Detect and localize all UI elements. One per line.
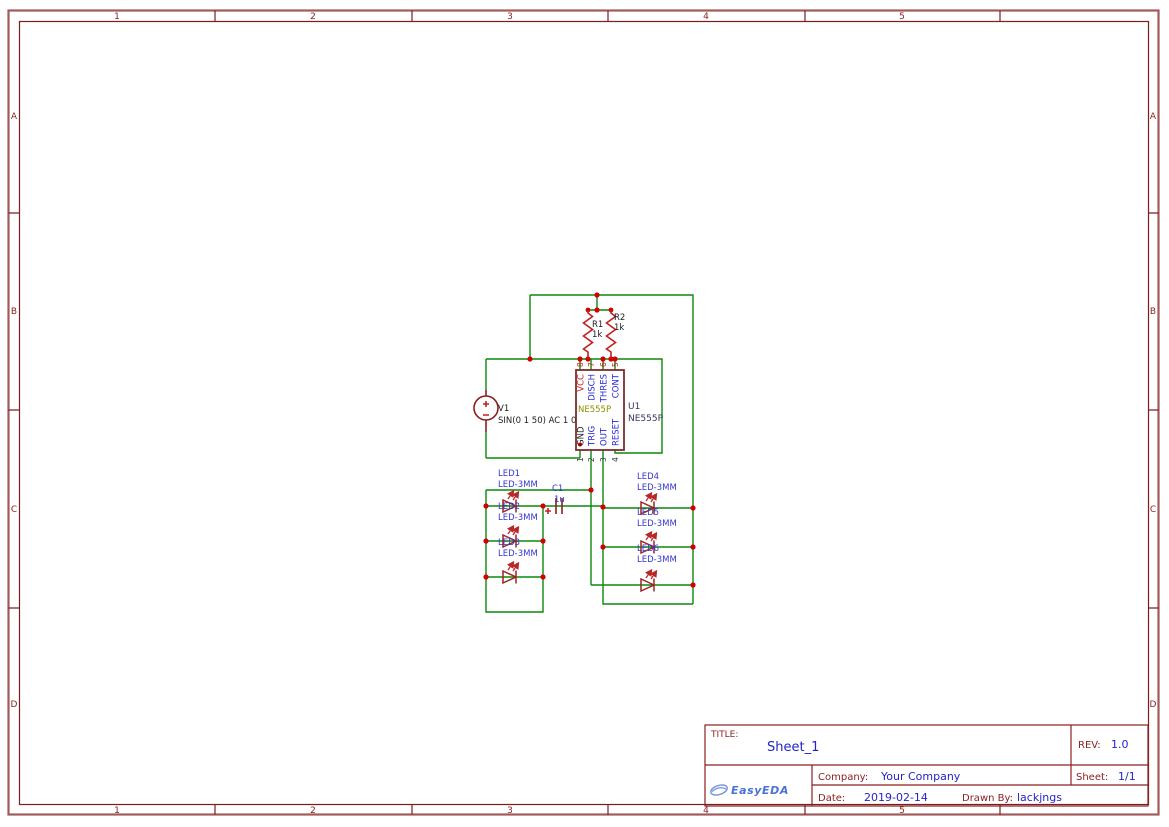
col-label: 1 <box>114 806 120 816</box>
date-label: Date: <box>818 793 845 804</box>
svg-text:OUT: OUT <box>600 427 610 446</box>
c1-ref: C1 <box>552 484 563 494</box>
row-label: A <box>1150 112 1157 122</box>
u1-top-pin-numbers: 8 7 6 5 <box>576 362 620 367</box>
svg-text:RESET: RESET <box>612 418 622 446</box>
svg-text:DISCH: DISCH <box>588 374 598 401</box>
component-v1-source[interactable]: V1 SIN(0 1 50) AC 1 0 <box>474 390 576 432</box>
svg-text:GND: GND <box>577 426 587 446</box>
title-label: TITLE: <box>710 730 738 740</box>
c1-value: 1u <box>554 495 565 505</box>
row-label: C <box>1150 505 1156 515</box>
svg-text:6: 6 <box>599 362 608 367</box>
rev-label: REV: <box>1078 740 1101 751</box>
row-label: B <box>1150 307 1156 317</box>
row-label: A <box>11 112 18 122</box>
easyeda-logo-text: EasyEDA <box>731 784 789 797</box>
company-label: Company: <box>818 772 868 783</box>
component-u1-ne555[interactable]: 8 7 6 5 1 2 3 4 VCC DISCH THRES CONT GND <box>576 362 664 462</box>
svg-text:5: 5 <box>611 362 620 367</box>
company-value[interactable]: Your Company <box>880 770 961 783</box>
led3-symbol[interactable] <box>503 562 519 584</box>
row-label: D <box>1150 700 1157 710</box>
date-value[interactable]: 2019-02-14 <box>864 791 928 804</box>
led6-symbol[interactable] <box>641 570 657 592</box>
led2-value: LED-3MM <box>498 513 538 523</box>
col-label: 5 <box>899 806 905 816</box>
row-label: B <box>11 307 17 317</box>
row-label: D <box>11 700 18 710</box>
col-label: 4 <box>703 12 709 22</box>
svg-text:3: 3 <box>599 457 608 462</box>
wire <box>486 450 580 458</box>
led1-ref: LED1 <box>498 469 520 479</box>
svg-text:4: 4 <box>611 457 620 462</box>
led3-value: LED-3MM <box>498 549 538 559</box>
rev-value[interactable]: 1.0 <box>1111 738 1129 751</box>
col-label: 4 <box>703 806 709 816</box>
circuit: V1 SIN(0 1 50) AC 1 0 R1 1k R2 1k 8 7 6 … <box>474 292 696 612</box>
row-label: C <box>11 505 17 515</box>
easyeda-logo-icon <box>710 783 729 797</box>
led4-ref: LED4 <box>637 472 659 482</box>
col-label: 3 <box>507 12 513 22</box>
drawn-by-label: Drawn By: <box>962 793 1013 804</box>
frame-row-labels-left: A B C D <box>11 112 18 710</box>
frame-column-labels-top: 1 2 3 4 5 <box>114 12 905 22</box>
schematic-sheet: 1 2 3 4 5 1 2 3 4 5 A B C D A B C D <box>0 0 1169 827</box>
polarity-plus <box>545 508 551 514</box>
led5-ref: LED5 <box>637 508 659 518</box>
component-c1-capacitor[interactable]: C1 1u <box>545 484 565 514</box>
component-r1-resistor[interactable]: R1 1k <box>584 310 604 359</box>
svg-text:7: 7 <box>587 362 596 367</box>
u1-value: NE555P <box>628 414 664 424</box>
svg-text:2: 2 <box>587 457 596 462</box>
col-label: 2 <box>310 12 316 22</box>
u1-ref: U1 <box>628 402 640 412</box>
r2-value: 1k <box>614 323 624 333</box>
led3-ref: LED3 <box>498 538 520 548</box>
u1-bottom-pin-numbers: 1 2 3 4 <box>576 457 620 462</box>
col-label: 5 <box>899 12 905 22</box>
u1-part-label: NE555P <box>578 405 611 415</box>
led4-value: LED-3MM <box>637 483 677 493</box>
led-labels: LED1 LED-3MM LED2 LED-3MM LED3 LED-3MM L… <box>498 469 677 565</box>
col-label: 1 <box>114 12 120 22</box>
title-block: TITLE: Sheet_1 REV: 1.0 Company: Your Co… <box>705 725 1148 806</box>
easyeda-logo: EasyEDA <box>710 783 789 797</box>
r1-ref: R1 <box>592 320 603 330</box>
col-label: 3 <box>507 806 513 816</box>
svg-text:8: 8 <box>576 362 585 367</box>
r1-value: 1k <box>592 330 602 340</box>
component-r2-resistor[interactable]: R2 1k <box>607 310 626 359</box>
led6-value: LED-3MM <box>637 555 677 565</box>
svg-text:VCC: VCC <box>577 374 587 392</box>
drawn-by-value[interactable]: lackjngs <box>1017 791 1062 804</box>
led5-value: LED-3MM <box>637 519 677 529</box>
v1-ref: V1 <box>498 404 509 414</box>
led1-value: LED-3MM <box>498 480 538 490</box>
col-label: 2 <box>310 806 316 816</box>
led6-ref: LED6 <box>637 544 659 554</box>
svg-text:TRIG: TRIG <box>588 426 598 447</box>
frame-row-labels-right: A B C D <box>1150 112 1157 710</box>
sheet-label: Sheet: <box>1076 772 1108 783</box>
led2-ref: LED2 <box>498 502 520 512</box>
svg-text:CONT: CONT <box>612 373 622 398</box>
svg-text:THRES: THRES <box>600 374 610 403</box>
r2-ref: R2 <box>614 313 625 323</box>
svg-text:1: 1 <box>576 457 585 462</box>
plus-minus-marks <box>483 401 489 415</box>
v1-value: SIN(0 1 50) AC 1 0 <box>498 416 576 426</box>
sheet-title[interactable]: Sheet_1 <box>767 740 819 755</box>
sheet-value[interactable]: 1/1 <box>1118 770 1136 783</box>
